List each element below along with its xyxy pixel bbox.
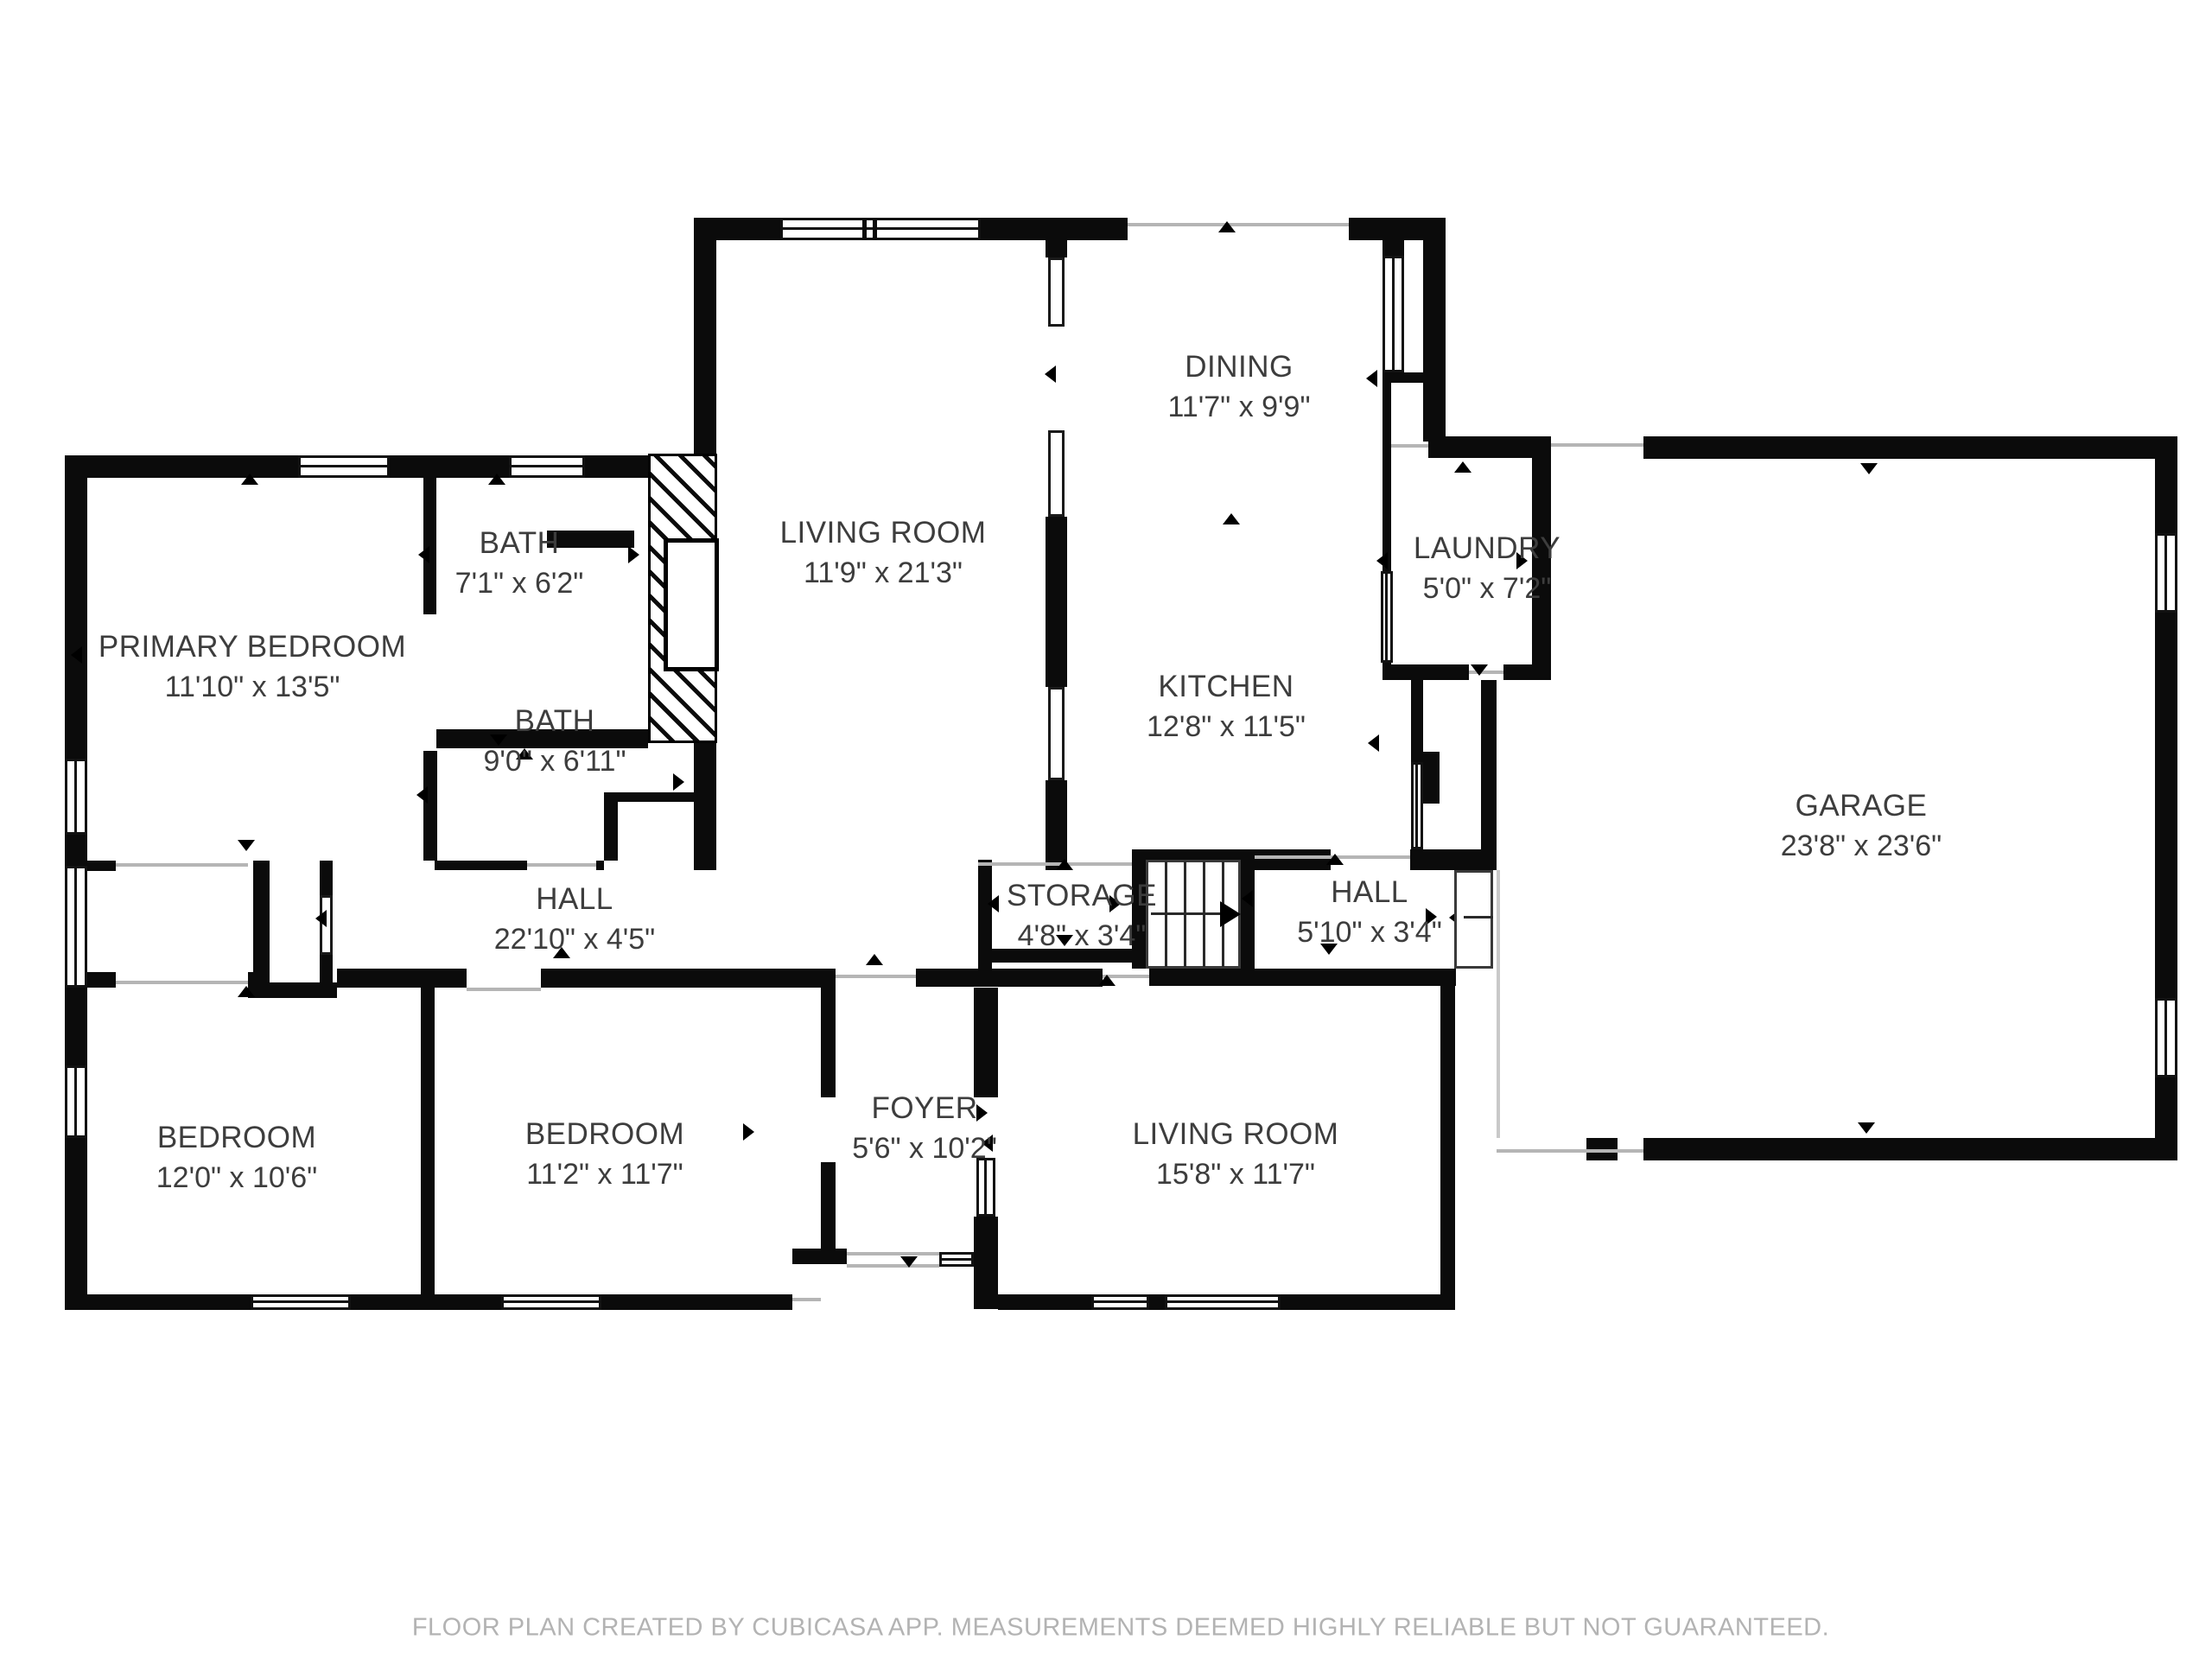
door-swing-icon (1045, 365, 1056, 383)
door-swing-icon (1218, 221, 1236, 232)
wall-segment (1241, 860, 1255, 969)
opening-line (1551, 443, 1643, 447)
wall-segment (1411, 680, 1423, 762)
wall-opening (1048, 257, 1065, 327)
wall-segment (2155, 613, 2177, 998)
opening-line (527, 863, 596, 867)
window (2155, 998, 2177, 1077)
room-dimensions: 11'7" x 9'9" (1167, 391, 1310, 424)
window-pane-line (253, 1300, 348, 1303)
window (939, 1252, 974, 1267)
opening-line (792, 1298, 821, 1301)
door-swing-icon (1368, 734, 1379, 752)
opening-line (1497, 1149, 1643, 1153)
wall-segment (604, 792, 702, 802)
wall-segment (1503, 664, 1551, 680)
wall-segment (974, 1217, 998, 1309)
window (298, 455, 390, 478)
window (2155, 533, 2177, 613)
room-dimensions: 5'0" x 7'2" (1414, 572, 1560, 606)
wall-segment (421, 969, 435, 1296)
wall-segment (423, 751, 437, 861)
wall-segment (1046, 780, 1067, 870)
window-pane-line (1094, 1300, 1147, 1303)
window-muntin (862, 218, 867, 240)
room-name: HALL (494, 882, 655, 917)
room-name: DINING (1167, 350, 1310, 385)
door-swing-icon (1366, 370, 1377, 387)
room-dimensions: 7'1" x 6'2" (455, 567, 584, 601)
room-label-living_room_upper: LIVING ROOM11'9" x 21'3" (780, 516, 987, 590)
wall-segment (541, 969, 821, 988)
room-name: BEDROOM (525, 1117, 684, 1152)
wall-segment (1149, 1294, 1165, 1310)
door-swing-icon (988, 895, 999, 912)
room-label-dining: DINING11'7" x 9'9" (1167, 350, 1310, 424)
room-label-primary_bedroom: PRIMARY BEDROOM11'10" x 13'5" (99, 630, 406, 704)
window-pane-line (1385, 574, 1388, 660)
wall-segment (1428, 436, 1551, 458)
window-pane-line (301, 465, 387, 467)
window-pane-line (1392, 258, 1395, 370)
opening-line (1391, 444, 1428, 448)
wall-opening (1048, 687, 1065, 780)
wall-segment (423, 455, 436, 614)
wall-segment (1046, 517, 1067, 687)
window-pane-line (512, 465, 582, 467)
wall-segment (974, 988, 998, 1097)
wall-segment (1410, 849, 1497, 870)
door-swing-icon (238, 986, 255, 997)
door-swing-icon (315, 910, 327, 927)
room-name: KITCHEN (1147, 670, 1306, 704)
wall-segment (65, 455, 87, 759)
room-name: BEDROOM (156, 1121, 317, 1155)
footer-disclaimer: FLOOR PLAN CREATED BY CUBICASA APP. MEAS… (412, 1614, 1829, 1643)
wall-segment (87, 1294, 251, 1310)
opening-line (1128, 223, 1349, 226)
wall-segment (87, 972, 116, 988)
wall-segment (1382, 664, 1469, 680)
closet (1454, 870, 1493, 969)
fireplace-insert (664, 538, 719, 671)
door-swing-icon (1098, 975, 1116, 986)
stairs-arrow-line (1151, 912, 1224, 915)
door-swing-icon (71, 646, 82, 664)
opening-line (116, 981, 248, 984)
room-label-foyer: FOYER5'6" x 10'2" (852, 1091, 997, 1166)
wall-segment (1382, 372, 1423, 383)
room-label-laundry: LAUNDRY5'0" x 7'2" (1414, 531, 1560, 606)
door-swing-icon (866, 954, 883, 965)
wall-segment (65, 1138, 87, 1310)
room-label-living_room_lower: LIVING ROOM15'8" x 11'7" (1133, 1117, 1339, 1192)
wall-segment (694, 218, 780, 240)
window (501, 1294, 601, 1310)
room-dimensions: 23'8" x 23'6" (1781, 829, 1942, 863)
door-swing-icon (416, 786, 428, 804)
wall-segment (1149, 969, 1456, 986)
room-dimensions: 15'8" x 11'7" (1133, 1158, 1339, 1192)
wall-segment (351, 1294, 435, 1310)
door-swing-icon (900, 1256, 918, 1268)
wall-segment (1046, 218, 1067, 257)
opening-line (116, 863, 248, 867)
room-dimensions: 5'6" x 10'2" (852, 1132, 997, 1166)
wall-opening (1048, 430, 1065, 517)
wall-segment (1643, 436, 2177, 459)
wall-segment (1382, 218, 1404, 256)
wall-segment (1440, 969, 1455, 1310)
window (1165, 1294, 1281, 1310)
door-swing-icon (241, 474, 258, 485)
room-name: BATH (483, 704, 626, 739)
wall-segment (65, 988, 87, 1065)
opening-line (978, 862, 1132, 866)
door-swing-icon (743, 1123, 754, 1141)
wall-segment (1643, 1138, 2177, 1160)
wall-segment (916, 969, 1103, 987)
window-pane-line (74, 868, 77, 985)
room-name: GARAGE (1781, 789, 1942, 823)
door-swing-icon (1471, 664, 1488, 676)
room-name: PRIMARY BEDROOM (99, 630, 406, 664)
window-pane-line (783, 227, 978, 230)
room-dimensions: 11'9" x 21'3" (780, 556, 987, 590)
room-dimensions: 12'8" x 11'5" (1147, 710, 1306, 744)
wall-segment (435, 1294, 501, 1310)
room-label-bath_lower: BATH9'0" x 6'11" (483, 704, 626, 779)
room-dimensions: 9'0" x 6'11" (483, 745, 626, 779)
window (1382, 256, 1404, 372)
wall-segment (998, 1294, 1091, 1310)
room-name: BATH (455, 526, 584, 561)
window (65, 759, 87, 835)
room-dimensions: 22'10" x 4'5" (494, 923, 655, 957)
window-pane-line (504, 1300, 599, 1303)
room-dimensions: 12'0" x 10'6" (156, 1161, 317, 1195)
opening-line (836, 975, 916, 978)
wall-segment (694, 743, 716, 870)
room-label-bath_upper: BATH7'1" x 6'2" (455, 526, 584, 601)
opening-line (847, 1252, 939, 1255)
door-swing-icon (1376, 552, 1388, 569)
room-label-bedroom_middle: BEDROOM11'2" x 11'7" (525, 1117, 684, 1192)
window-pane-line (74, 761, 77, 832)
closet-door-line (1464, 916, 1493, 918)
room-label-bedroom_left: BEDROOM12'0" x 10'6" (156, 1121, 317, 1195)
wall-segment (694, 218, 716, 455)
window (976, 1158, 995, 1217)
door-swing-icon (1454, 461, 1471, 473)
stairs-direction-arrow-icon (1220, 901, 1241, 927)
wall-segment (2155, 436, 2177, 533)
door-swing-icon (1242, 890, 1253, 907)
window (251, 1294, 351, 1310)
door-swing-icon (488, 474, 505, 485)
wall-segment (87, 861, 116, 871)
window-pane-line (2164, 536, 2167, 610)
room-label-garage: GARAGE23'8" x 23'6" (1781, 789, 1942, 863)
room-dimensions: 11'2" x 11'7" (525, 1158, 684, 1192)
window-pane-line (2164, 1001, 2167, 1075)
room-dimensions: 4'8" x 3'4" (1007, 919, 1157, 953)
room-dimensions: 11'10" x 13'5" (99, 671, 406, 704)
wall-segment (596, 861, 604, 870)
window-pane-line (984, 1160, 987, 1214)
wall-segment (604, 802, 618, 861)
window (509, 455, 585, 478)
window-muntin (873, 218, 877, 240)
wall-segment (821, 969, 836, 1097)
room-name: FOYER (852, 1091, 997, 1126)
wall-segment (1481, 680, 1497, 849)
door-swing-icon (673, 773, 684, 791)
window-pane-line (74, 1068, 77, 1135)
opening-line (467, 988, 541, 991)
room-label-storage: STORAGE4'8" x 3'4" (1007, 879, 1157, 953)
wall-segment (1281, 1294, 1440, 1310)
opening-line (847, 1264, 939, 1268)
window-pane-line (942, 1258, 971, 1261)
wall-segment (253, 861, 270, 991)
boundary-line (1497, 870, 1500, 1138)
room-dimensions: 5'10" x 3'4" (1297, 916, 1442, 950)
window (65, 866, 87, 988)
wall-segment (253, 982, 337, 998)
door-swing-icon (1326, 854, 1344, 865)
door-swing-icon (628, 546, 639, 563)
door-swing-icon (418, 546, 429, 563)
floor-plan: PRIMARY BEDROOM11'10" x 13'5"BATH7'1" x … (0, 0, 2212, 1659)
wall-segment (337, 969, 467, 988)
room-label-hall_main: HALL22'10" x 4'5" (494, 882, 655, 957)
room-label-hall_side: HALL5'10" x 3'4" (1297, 875, 1442, 950)
window (1381, 571, 1393, 663)
wall-segment (792, 1249, 834, 1264)
wall-segment (1423, 218, 1446, 442)
door-swing-icon (1860, 463, 1878, 474)
window (1411, 762, 1423, 849)
window (1091, 1294, 1149, 1310)
room-name: LAUNDRY (1414, 531, 1560, 566)
door-swing-icon (1056, 859, 1073, 870)
window (65, 1065, 87, 1138)
window-pane-line (1167, 1300, 1278, 1303)
window-pane-line (1415, 765, 1418, 847)
wall-segment (435, 861, 527, 870)
room-label-kitchen: KITCHEN12'8" x 11'5" (1147, 670, 1306, 744)
door-swing-icon (1858, 1122, 1875, 1134)
door-swing-icon (1223, 513, 1240, 524)
room-name: LIVING ROOM (780, 516, 987, 550)
wall-segment (65, 455, 298, 478)
wall-segment (320, 861, 333, 895)
door-swing-icon (238, 840, 255, 851)
room-name: STORAGE (1007, 879, 1157, 913)
window (780, 218, 981, 240)
wall-segment (601, 1294, 792, 1310)
room-name: LIVING ROOM (1133, 1117, 1339, 1152)
room-name: HALL (1297, 875, 1442, 910)
wall-segment (65, 835, 87, 866)
wall-segment (1382, 383, 1391, 442)
